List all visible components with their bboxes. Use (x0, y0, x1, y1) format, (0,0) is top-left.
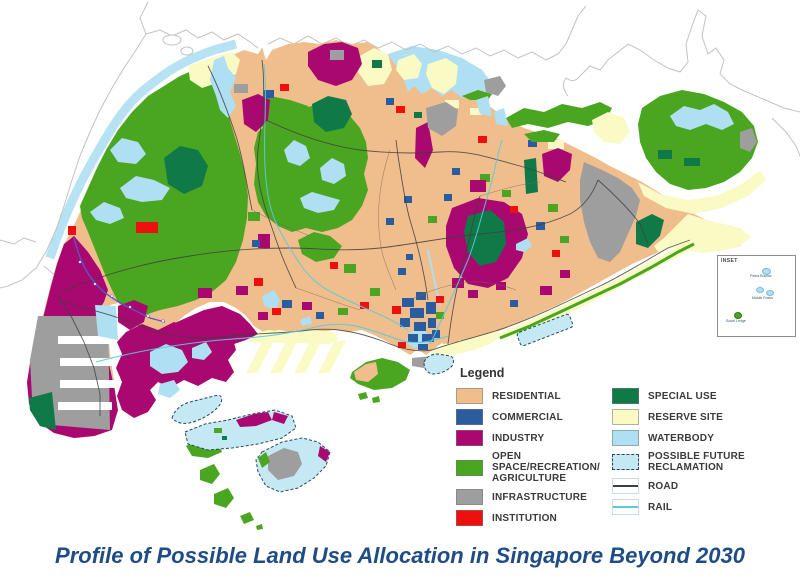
legend-label: INFRASTRUCTURE (492, 492, 587, 503)
map-title: Profile of Possible Land Use Allocation … (0, 543, 800, 569)
map-inset: INSET Pedra Branca Middle Rocks South Le… (717, 255, 796, 337)
special-use-swatch (612, 388, 639, 404)
legend-label: COMMERCIAL (492, 412, 563, 423)
legend-item-infrastructure: INFRASTRUCTURE (456, 489, 612, 505)
road-line (613, 485, 638, 487)
rail-line (613, 506, 638, 508)
legend-item-residential: RESIDENTIAL (456, 388, 612, 404)
legend-label: RESERVE SITE (648, 412, 723, 423)
legend-label: OPEN SPACE/RECREATION/ AGRICULTURE (492, 451, 610, 484)
legend-item-reserve-site: RESERVE SITE (612, 409, 800, 425)
sentosa-island (350, 358, 410, 403)
inset-island-middle-rocks (756, 287, 764, 293)
legend-item-road: ROAD (612, 478, 800, 494)
legend-title: Legend (460, 366, 800, 380)
reclamation-swatch (612, 454, 639, 470)
residential-swatch (456, 388, 483, 404)
legend-label: SPECIAL USE (648, 391, 717, 402)
legend-item-industry: INDUSTRY (456, 430, 612, 446)
reclamation-zone-jurong-south (172, 395, 222, 423)
commercial-swatch (456, 409, 483, 425)
legend-item-open-space: OPEN SPACE/RECREATION/ AGRICULTURE (456, 451, 612, 484)
inset-island-south-ledge (734, 312, 742, 319)
inset-title: INSET (721, 258, 738, 264)
inset-island-label: Pedra Branca (750, 275, 771, 279)
legend-label: WATERBODY (648, 433, 714, 444)
legend-label: RAIL (648, 502, 672, 513)
legend-item-waterbody: WATERBODY (612, 430, 800, 446)
legend-item-institution: INSTITUTION (456, 510, 612, 526)
inset-island-label: Middle Rocks (752, 297, 773, 301)
rail-swatch (612, 499, 639, 515)
reserve-site-swatch (612, 409, 639, 425)
institution-swatch (456, 510, 483, 526)
inset-island-label: South Ledge (726, 320, 746, 324)
legend-label: ROAD (648, 481, 678, 492)
legend-item-rail: RAIL (612, 499, 800, 515)
legend-item-reclamation: POSSIBLE FUTURE RECLAMATION (612, 451, 800, 473)
legend-label: INDUSTRY (492, 433, 544, 444)
waterbody-swatch (612, 430, 639, 446)
industry-swatch (456, 430, 483, 446)
map-legend: Legend RESIDENTIAL COMMERCIAL INDUSTRY O… (456, 366, 800, 531)
legend-label: POSSIBLE FUTURE RECLAMATION (648, 451, 800, 473)
southern-islands (186, 438, 263, 530)
legend-item-commercial: COMMERCIAL (456, 409, 612, 425)
infrastructure-swatch (456, 489, 483, 505)
legend-item-special-use: SPECIAL USE (612, 388, 800, 404)
open-space-swatch (456, 460, 483, 476)
slide: Legend RESIDENTIAL COMMERCIAL INDUSTRY O… (0, 0, 800, 582)
pulau-tekong (638, 90, 766, 214)
reclamation-zone-labrador (424, 354, 454, 374)
legend-label: INSTITUTION (492, 513, 557, 524)
road-swatch (612, 478, 639, 494)
legend-label: RESIDENTIAL (492, 391, 561, 402)
